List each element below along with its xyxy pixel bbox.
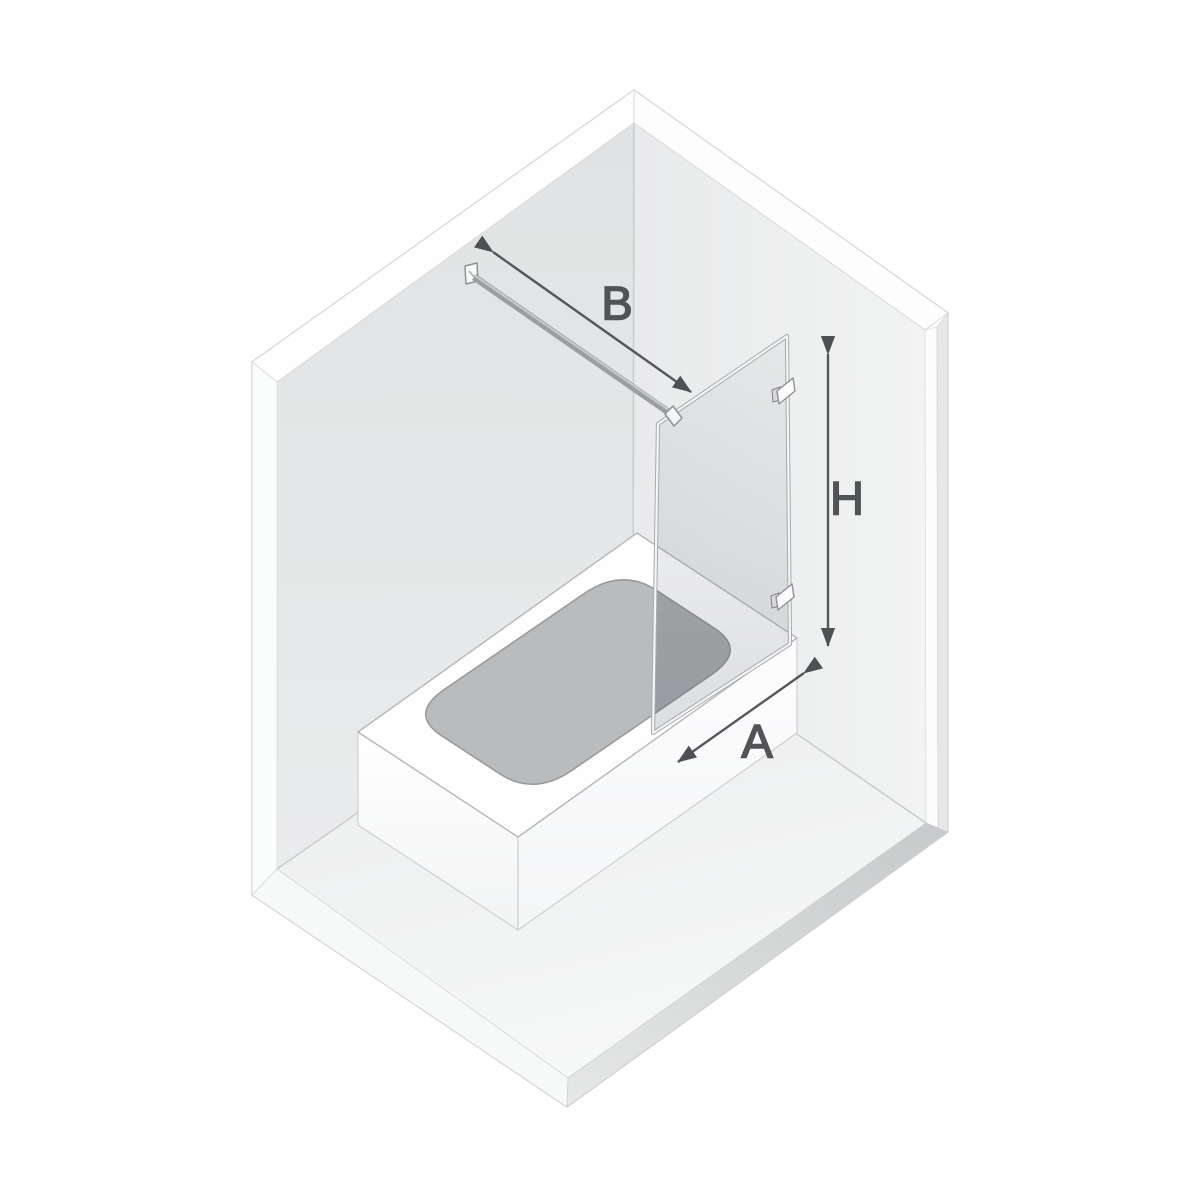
left-wall-side-edge: [252, 362, 277, 895]
label-a: A: [741, 715, 773, 768]
isometric-diagram: B H A: [0, 0, 1200, 1200]
label-b: B: [601, 277, 632, 330]
right-wall-side-edge: [925, 327, 938, 828]
label-h: H: [830, 472, 864, 525]
right-wall-outer-strip: [937, 313, 948, 832]
diagram-canvas: B H A: [0, 0, 1200, 1200]
